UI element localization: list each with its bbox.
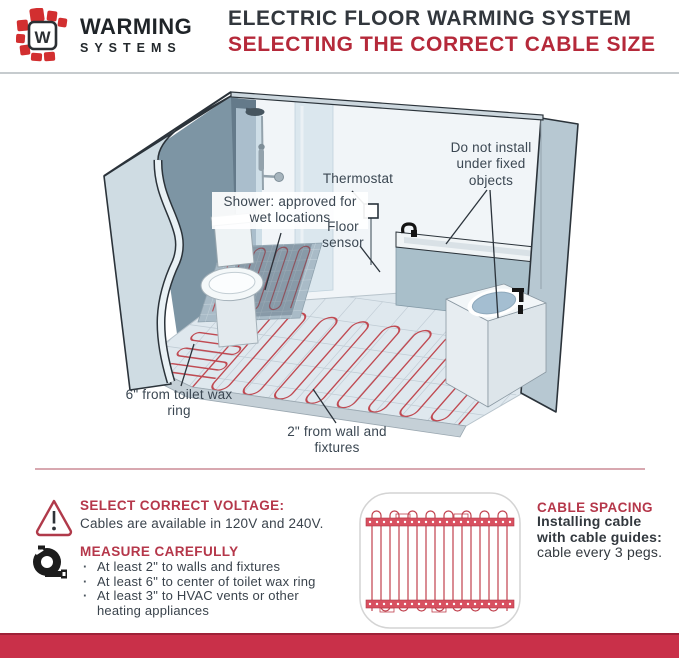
label-fixed-objects: Do not install under fixed objects: [436, 140, 546, 189]
label-floor-sensor: Floor sensor: [312, 219, 374, 252]
bullet-item: At least 3" to HVAC vents or other heati…: [80, 589, 330, 618]
bullet-item: At least 6" to center of toilet wax ring: [80, 575, 330, 590]
cable-spacing-rest: cable every 3 pegs.: [537, 544, 662, 560]
footer-bar: [0, 633, 679, 658]
bullet-item: At least 2" to walls and fixtures: [80, 560, 330, 575]
section-divider: [35, 468, 645, 470]
cable-spacing-body: Installing cable with cable guides: cabl…: [537, 514, 671, 561]
label-thermostat: Thermostat: [318, 171, 398, 187]
page-title: ELECTRIC FLOOR WARMING SYSTEM: [228, 6, 668, 32]
page-subtitle: SELECTING THE CORRECT CABLE SIZE: [228, 32, 668, 58]
cable-spacing-card: [360, 493, 520, 628]
brand-logo-icon: W: [16, 8, 70, 62]
voltage-tip-body: Cables are available in 120V and 240V.: [80, 516, 324, 531]
brand-monogram: W: [34, 28, 51, 47]
label-toilet-clearance: 6" from toilet wax ring: [120, 387, 238, 420]
measure-tip-bullets: At least 2" to walls and fixtures At lea…: [80, 560, 330, 618]
header-divider: [0, 72, 679, 74]
brand-logo: W WARMING SYSTEMS: [16, 8, 192, 62]
infographic: W WARMING SYSTEMS ELECTRIC FLOOR WARMING…: [0, 0, 679, 658]
brand-subname: SYSTEMS: [80, 41, 192, 55]
warning-triangle-icon: [37, 501, 71, 535]
measure-tip-title: MEASURE CAREFULLY: [80, 544, 239, 559]
tape-measure-icon: [33, 546, 67, 579]
voltage-tip-title: SELECT CORRECT VOLTAGE:: [80, 498, 284, 513]
cable-spacing-lead: Installing cable with cable guides:: [537, 513, 662, 545]
label-wall-clearance: 2" from wall and fixtures: [278, 424, 396, 457]
brand-name: WARMING: [80, 15, 192, 38]
